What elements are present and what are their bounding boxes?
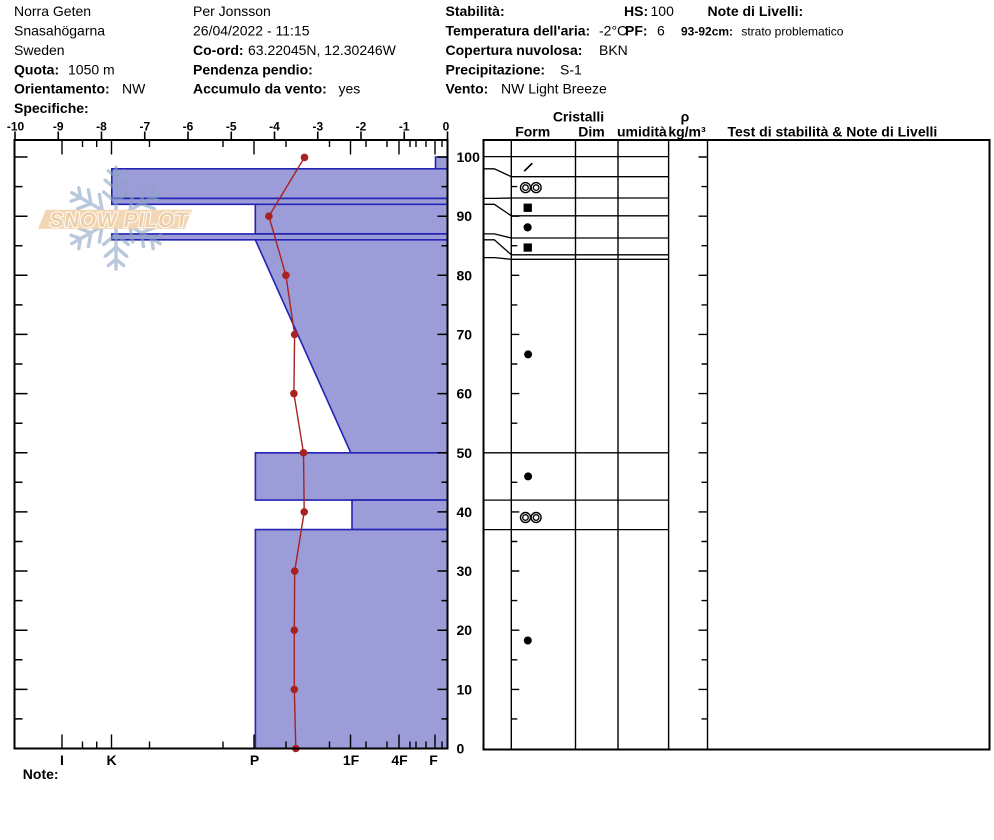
svg-text:60: 60	[457, 386, 473, 402]
svg-text:-1: -1	[399, 120, 410, 134]
svg-text:-3: -3	[312, 120, 323, 134]
svg-text:Norra Geten: Norra Geten	[14, 3, 91, 19]
svg-text:-2: -2	[356, 120, 367, 134]
svg-text:I: I	[60, 752, 64, 768]
svg-text:Note di Livelli:: Note di Livelli:	[708, 3, 804, 19]
svg-text:20: 20	[457, 622, 473, 638]
svg-text:30: 30	[457, 563, 473, 579]
svg-text:-7: -7	[139, 120, 150, 134]
svg-text:Snasahögarna: Snasahögarna	[14, 23, 105, 39]
svg-text:Vento:NW Light Breeze: Vento:NW Light Breeze	[446, 81, 608, 97]
svg-text:-4: -4	[269, 120, 280, 134]
svg-text:-8: -8	[96, 120, 107, 134]
svg-text:-5: -5	[226, 120, 237, 134]
svg-text:umidità: umidità	[617, 124, 667, 140]
svg-text:Form: Form	[515, 124, 550, 140]
svg-text:Pendenza pendio:: Pendenza pendio:	[193, 61, 313, 77]
svg-text:Dim: Dim	[578, 124, 604, 140]
svg-text:-6: -6	[183, 120, 194, 134]
svg-text:1F: 1F	[343, 752, 360, 768]
svg-text:10: 10	[457, 681, 473, 697]
svg-text:50: 50	[457, 445, 473, 461]
svg-text:90: 90	[457, 208, 473, 224]
svg-text:F: F	[429, 752, 438, 768]
svg-text:Cristalli: Cristalli	[553, 109, 604, 125]
svg-text:kg/m³: kg/m³	[668, 124, 706, 140]
svg-text:4F: 4F	[391, 752, 408, 768]
svg-text:Note:: Note:	[23, 766, 59, 782]
svg-text:Co-ord:63.22045N, 12.30246W: Co-ord:63.22045N, 12.30246W	[193, 42, 397, 58]
svg-text:0: 0	[457, 741, 465, 757]
svg-text:40: 40	[457, 504, 473, 520]
svg-text:Precipitazione:S-1: Precipitazione:S-1	[446, 61, 583, 77]
svg-text:Specifiche:: Specifiche:	[14, 100, 89, 116]
svg-text:SNOW PILOT: SNOW PILOT	[48, 209, 190, 232]
svg-text:0: 0	[443, 120, 450, 134]
svg-text:70: 70	[457, 326, 473, 342]
svg-text:80: 80	[457, 267, 473, 283]
svg-text:26/04/2022 - 11:15: 26/04/2022 - 11:15	[193, 23, 310, 39]
svg-text:100: 100	[457, 149, 481, 165]
svg-text:-10: -10	[7, 120, 25, 134]
svg-text:K: K	[106, 752, 116, 768]
svg-text:93-92cm: strato problematico: 93-92cm: strato problematico	[681, 25, 844, 39]
svg-text:Sweden: Sweden	[14, 42, 65, 58]
svg-text:-9: -9	[53, 120, 64, 134]
svg-text:ρ: ρ	[681, 109, 690, 125]
svg-text:Test di stabilità & Note di Li: Test di stabilità & Note di Livelli	[728, 124, 938, 140]
svg-text:Temperatura dell'aria:-2°CPF:6: Temperatura dell'aria:-2°CPF:6	[446, 23, 666, 39]
svg-text:P: P	[250, 752, 259, 768]
svg-text:Per Jonsson: Per Jonsson	[193, 3, 271, 19]
svg-text:Copertura nuvolosa:BKN: Copertura nuvolosa:BKN	[446, 42, 628, 58]
svg-text:Orientamento:NW: Orientamento:NW	[14, 81, 146, 97]
